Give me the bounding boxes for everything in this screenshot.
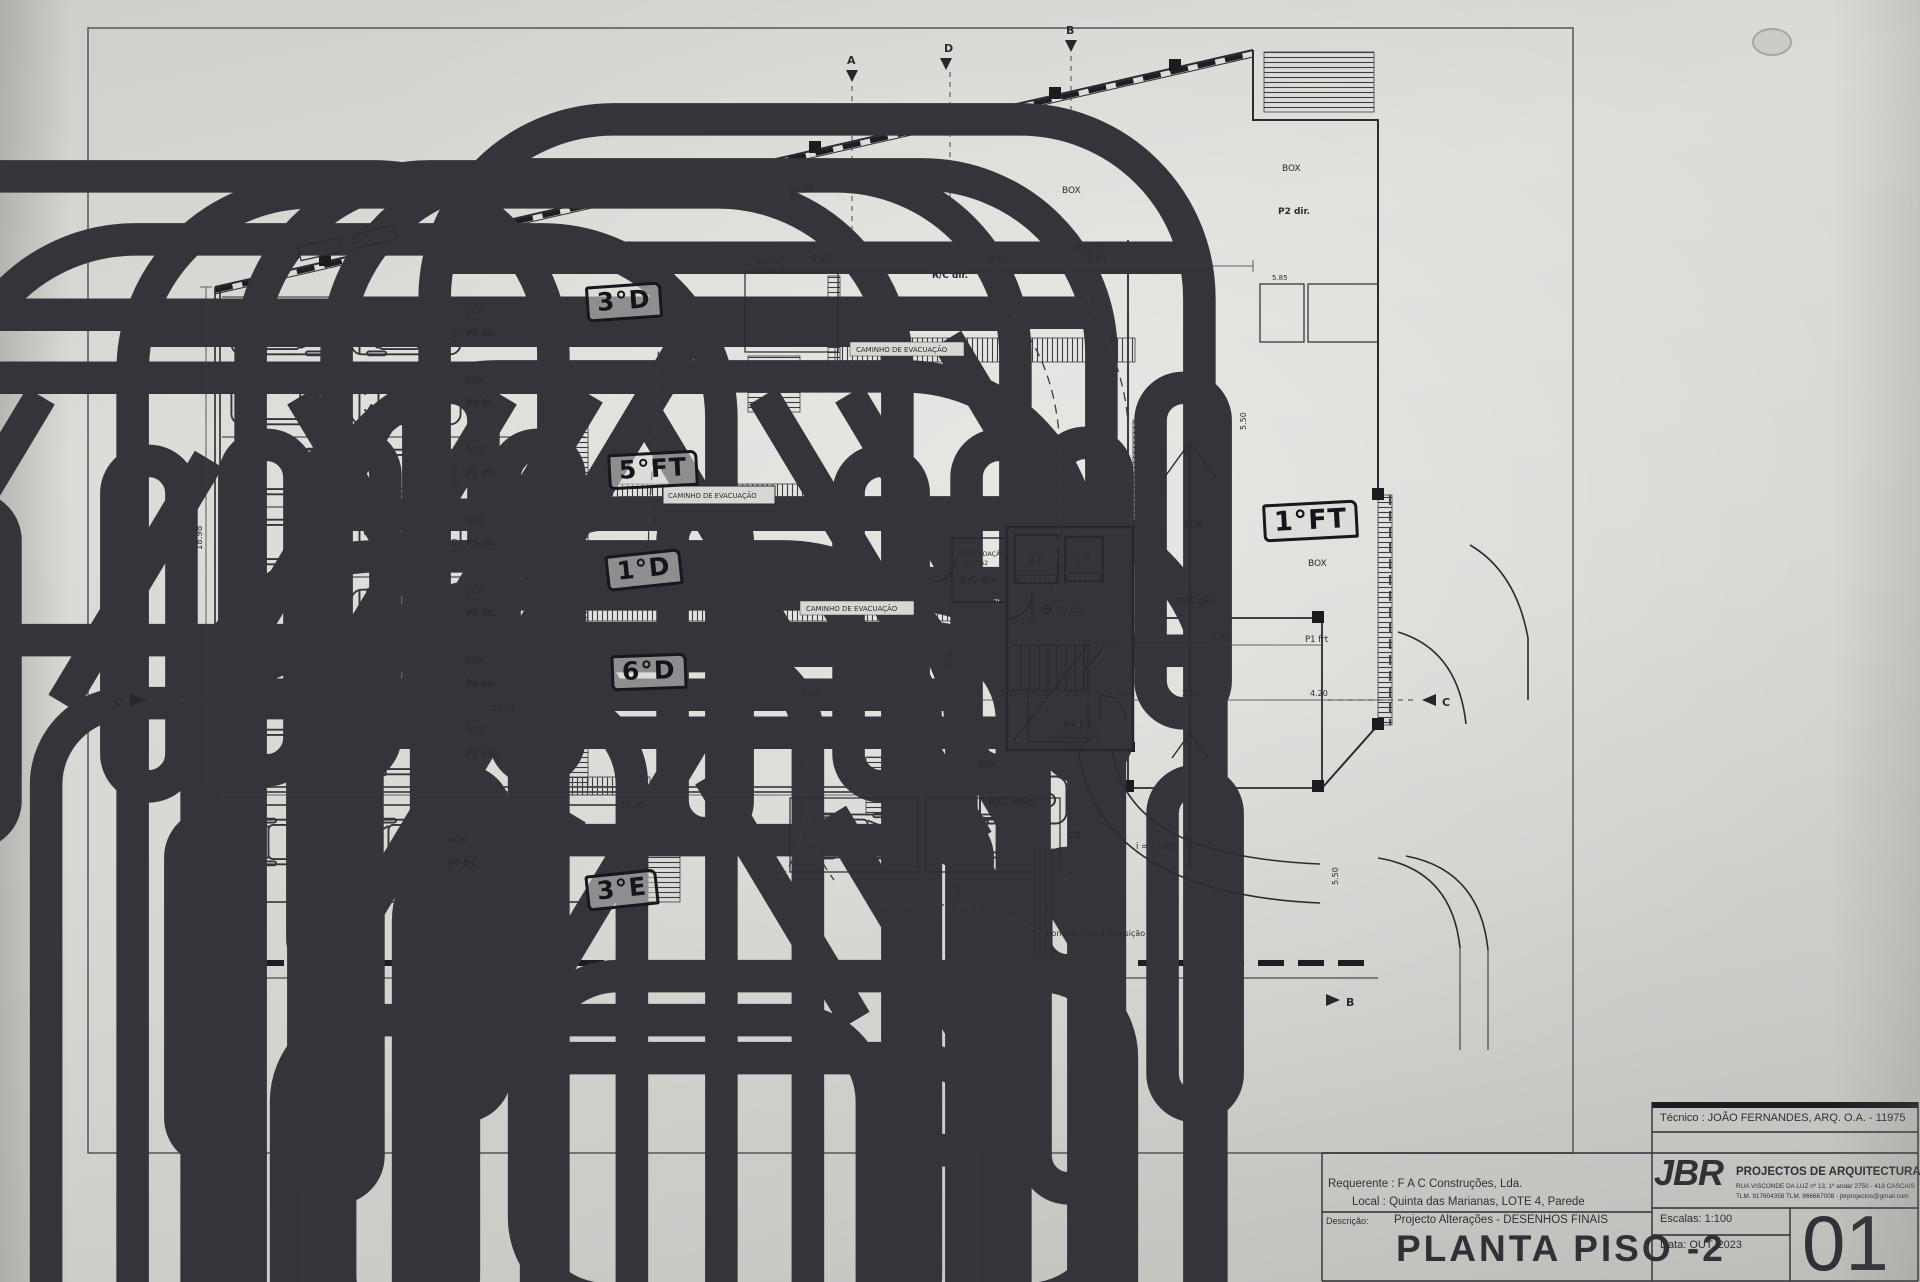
- local: Local : Quinta das Marianas, LOTE 4, Par…: [1352, 1196, 1585, 1208]
- descricao: Projecto Alterações - DESENHOS FINAIS: [1394, 1214, 1608, 1226]
- scanned-drawing-photo: ZONA TÉCNICA CAMINHO DE EVACUAÇÃO CAMINH…: [0, 0, 1920, 1282]
- descricao-label: Descrição:: [1326, 1216, 1369, 1226]
- requerente: Requerente : F A C Construções, Lda.: [1328, 1178, 1522, 1190]
- data: Data: OUT. 2023: [1660, 1239, 1742, 1251]
- escalas: Escalas: 1:100: [1660, 1213, 1732, 1225]
- firm-logo: JBR: [1654, 1152, 1723, 1194]
- tecnico: Técnico : JOÃO FERNANDES, ARQ. O.A. - 11…: [1660, 1112, 1906, 1124]
- firm-address: RUA VISCONDE DA LUZ nº 13, 1º andar 2750…: [1736, 1183, 1915, 1190]
- firm-name: PROJECTOS DE ARQUITECTURA: [1736, 1166, 1920, 1178]
- sheet-number: 01: [1802, 1204, 1889, 1282]
- title-block: Técnico : JOÃO FERNANDES, ARQ. O.A. - 11…: [0, 0, 1920, 1282]
